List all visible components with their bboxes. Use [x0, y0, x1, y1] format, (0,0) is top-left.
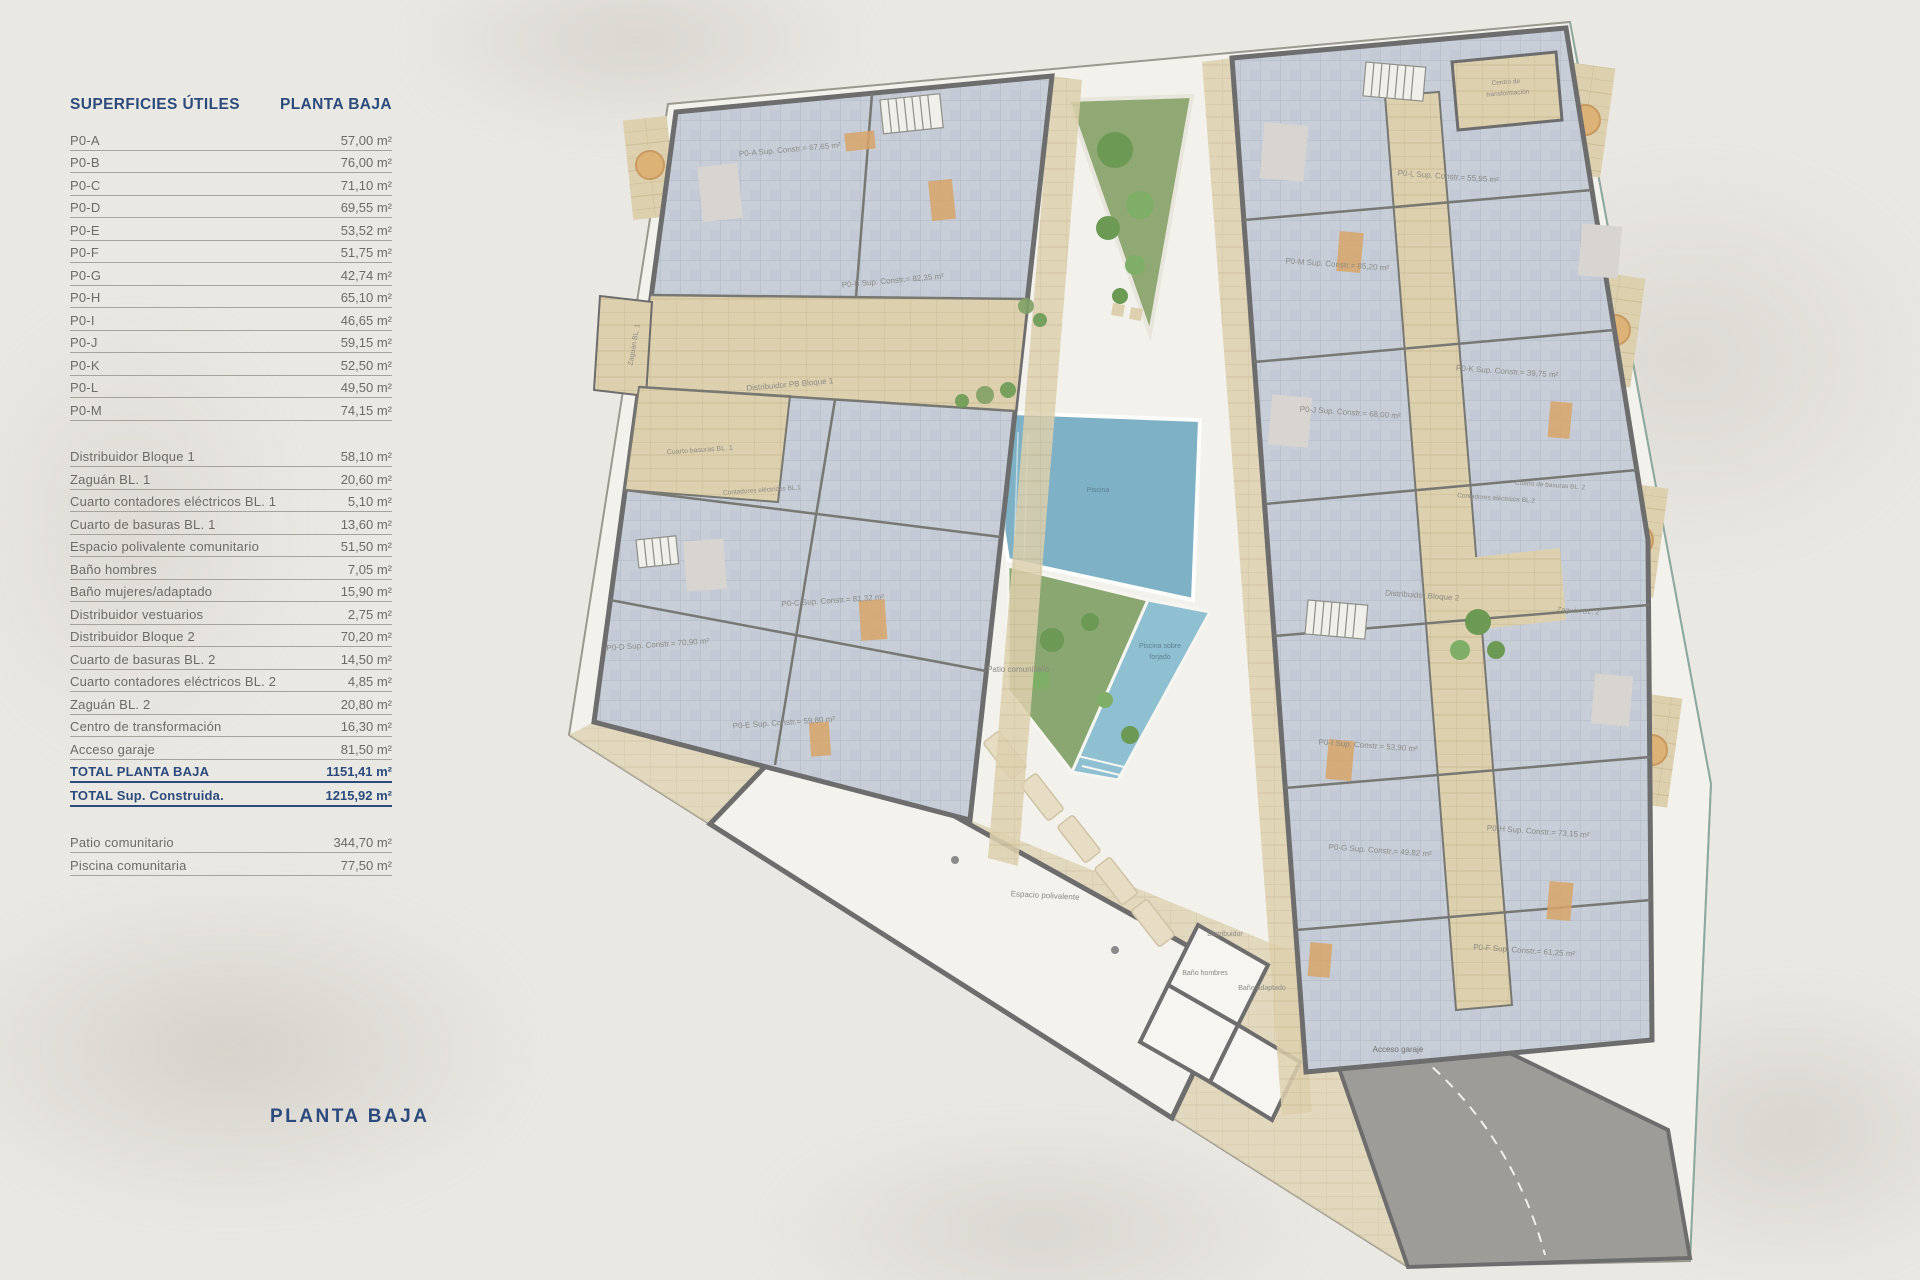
- row-label: P0-I: [70, 313, 95, 330]
- row-label: Distribuidor Bloque 2: [70, 629, 195, 646]
- row-label: P0-D: [70, 200, 100, 217]
- row-value: 59,15 m²: [341, 335, 392, 352]
- row-label: P0-G: [70, 268, 101, 285]
- row-value: 20,60 m²: [341, 472, 392, 489]
- row-value: 69,55 m²: [341, 200, 392, 217]
- row-label: Zaguán BL. 2: [70, 697, 150, 714]
- row-value: 2,75 m²: [348, 607, 392, 624]
- label-distribuidor: Distribuidor: [1207, 931, 1243, 938]
- table-row: Piscina comunitaria77,50 m²: [70, 853, 392, 876]
- table-row: P0-G42,74 m²: [70, 263, 392, 286]
- table-row: P0-L49,50 m²: [70, 376, 392, 399]
- row-value: 51,50 m²: [341, 539, 392, 556]
- label-patio: Patio comunitario: [987, 665, 1049, 674]
- row-label: TOTAL Sup. Construida.: [70, 788, 224, 805]
- row-label: Acceso garaje: [70, 742, 155, 759]
- row-label: Distribuidor Bloque 1: [70, 449, 195, 466]
- table-subtitle: PLANTA BAJA: [280, 96, 392, 114]
- row-value: 58,10 m²: [341, 449, 392, 466]
- table-row: P0-J59,15 m²: [70, 331, 392, 354]
- table-row: Acceso garaje81,50 m²: [70, 737, 392, 760]
- surface-table: SUPERFICIES ÚTILES PLANTA BAJA P0-A57,00…: [70, 96, 392, 876]
- table-row: Zaguán BL. 120,60 m²: [70, 467, 392, 490]
- row-label: P0-L: [70, 380, 98, 397]
- table-row: P0-A57,00 m²: [70, 128, 392, 151]
- outdoor-section: Patio comunitario344,70 m²Piscina comuni…: [70, 831, 392, 876]
- table-row: Patio comunitario344,70 m²: [70, 831, 392, 854]
- table-title: SUPERFICIES ÚTILES: [70, 96, 240, 114]
- row-label: P0-B: [70, 155, 100, 172]
- row-label: Piscina comunitaria: [70, 858, 187, 875]
- row-label: P0-K: [70, 358, 100, 375]
- table-row: Cuarto de basuras BL. 113,60 m²: [70, 512, 392, 535]
- table-row: Baño hombres7,05 m²: [70, 557, 392, 580]
- page-background: P0-A Sup. Constr.= 67,65 m² P0-B Sup. Co…: [0, 0, 1920, 1280]
- table-header: SUPERFICIES ÚTILES PLANTA BAJA: [70, 96, 392, 114]
- row-label: Baño mujeres/adaptado: [70, 584, 212, 601]
- row-value: 52,50 m²: [341, 358, 392, 375]
- table-row: P0-E53,52 m²: [70, 218, 392, 241]
- row-label: TOTAL PLANTA BAJA: [70, 764, 209, 781]
- table-row: Zaguán BL. 220,80 m²: [70, 692, 392, 715]
- row-value: 5,10 m²: [348, 494, 392, 511]
- row-value: 16,30 m²: [341, 719, 392, 736]
- table-row: P0-H65,10 m²: [70, 286, 392, 309]
- row-value: 65,10 m²: [341, 290, 392, 307]
- row-value: 70,20 m²: [341, 629, 392, 646]
- row-label: Patio comunitario: [70, 835, 174, 852]
- row-value: 57,00 m²: [341, 133, 392, 150]
- common-areas-section: Distribuidor Bloque 158,10 m²Zaguán BL. …: [70, 445, 392, 807]
- row-value: 81,50 m²: [341, 742, 392, 759]
- table-row: Centro de transformación16,30 m²: [70, 715, 392, 738]
- row-value: 77,50 m²: [341, 858, 392, 875]
- table-row: P0-F51,75 m²: [70, 241, 392, 264]
- table-row: Baño mujeres/adaptado15,90 m²: [70, 580, 392, 603]
- row-label: Centro de transformación: [70, 719, 221, 736]
- table-row: TOTAL PLANTA BAJA1151,41 m²: [70, 760, 392, 784]
- row-label: Baño hombres: [70, 562, 157, 579]
- row-value: 49,50 m²: [341, 380, 392, 397]
- table-row: TOTAL Sup. Construida.1215,92 m²: [70, 783, 392, 807]
- row-value: 42,74 m²: [341, 268, 392, 285]
- row-value: 71,10 m²: [341, 178, 392, 195]
- table-row: P0-K52,50 m²: [70, 353, 392, 376]
- row-label: P0-J: [70, 335, 98, 352]
- row-label: Zaguán BL. 1: [70, 472, 150, 489]
- table-row: P0-D69,55 m²: [70, 196, 392, 219]
- label-piscina-forjado-2: forjado: [1149, 654, 1171, 661]
- row-label: P0-H: [70, 290, 100, 307]
- row-label: Espacio polivalente comunitario: [70, 539, 259, 556]
- row-value: 74,15 m²: [341, 403, 392, 420]
- row-value: 4,85 m²: [348, 674, 392, 691]
- table-row: Distribuidor Bloque 270,20 m²: [70, 625, 392, 648]
- table-row: Distribuidor Bloque 158,10 m²: [70, 445, 392, 468]
- row-value: 53,52 m²: [341, 223, 392, 240]
- table-row: Distribuidor vestuarios2,75 m²: [70, 602, 392, 625]
- row-label: Cuarto de basuras BL. 2: [70, 652, 216, 669]
- label-banio-hombres: Baño hombres: [1182, 970, 1228, 977]
- label-piscina: Piscina: [1087, 487, 1110, 494]
- apartments-section: P0-A57,00 m²P0-B76,00 m²P0-C71,10 m²P0-D…: [70, 128, 392, 421]
- floor-plan-title: PLANTA BAJA: [270, 1106, 429, 1128]
- row-label: P0-E: [70, 223, 100, 240]
- table-row: Cuarto contadores eléctricos BL. 24,85 m…: [70, 670, 392, 693]
- row-label: P0-C: [70, 178, 100, 195]
- row-value: 14,50 m²: [341, 652, 392, 669]
- row-value: 344,70 m²: [333, 835, 392, 852]
- row-value: 76,00 m²: [341, 155, 392, 172]
- table-row: P0-I46,65 m²: [70, 308, 392, 331]
- table-row: P0-C71,10 m²: [70, 173, 392, 196]
- table-row: P0-M74,15 m²: [70, 398, 392, 421]
- row-label: Cuarto de basuras BL. 1: [70, 517, 216, 534]
- label-banio-adaptado: Baño adaptado: [1238, 985, 1286, 992]
- table-row: P0-B76,00 m²: [70, 151, 392, 174]
- row-value: 15,90 m²: [341, 584, 392, 601]
- table-row: Cuarto de basuras BL. 214,50 m²: [70, 647, 392, 670]
- row-label: Cuarto contadores eléctricos BL. 2: [70, 674, 276, 691]
- row-value: 7,05 m²: [348, 562, 392, 579]
- row-value: 1151,41 m²: [326, 764, 392, 781]
- table-row: Espacio polivalente comunitario51,50 m²: [70, 535, 392, 558]
- row-label: P0-A: [70, 133, 100, 150]
- label-acceso-garaje: Acceso garaje: [1373, 1045, 1424, 1054]
- row-label: Cuarto contadores eléctricos BL. 1: [70, 494, 276, 511]
- row-value: 51,75 m²: [341, 245, 392, 262]
- row-value: 46,65 m²: [341, 313, 392, 330]
- row-label: P0-M: [70, 403, 102, 420]
- row-label: Distribuidor vestuarios: [70, 607, 203, 624]
- row-value: 1215,92 m²: [326, 788, 393, 805]
- table-row: Cuarto contadores eléctricos BL. 15,10 m…: [70, 490, 392, 513]
- label-piscina-forjado: Piscina sobre: [1139, 643, 1181, 650]
- building-block-2: [1232, 28, 1652, 1072]
- row-value: 20,80 m²: [341, 697, 392, 714]
- row-value: 13,60 m²: [341, 517, 392, 534]
- row-label: P0-F: [70, 245, 99, 262]
